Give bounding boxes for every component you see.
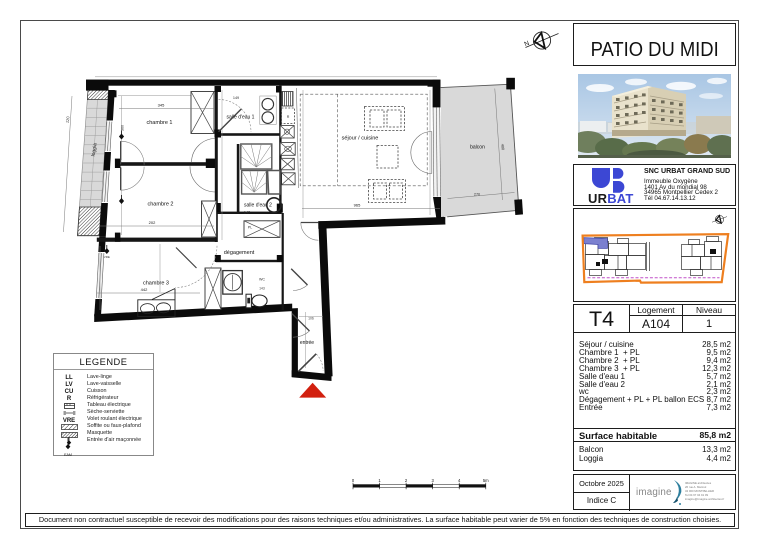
svg-text:965: 965 — [354, 203, 361, 208]
svg-text:0: 0 — [352, 478, 355, 483]
svg-text:4: 4 — [458, 478, 461, 483]
svg-text:PL: PL — [248, 226, 252, 230]
svg-text:202: 202 — [149, 220, 156, 225]
svg-text:chambre 3: chambre 3 — [143, 280, 169, 286]
svg-text:EAM: EAM — [64, 453, 72, 457]
svg-text:345: 345 — [158, 102, 165, 107]
svg-text:entrée: entrée — [300, 340, 314, 346]
svg-text:N: N — [523, 40, 530, 48]
svg-text:400: 400 — [500, 144, 504, 151]
svg-text:imagine: imagine — [636, 487, 672, 498]
svg-text:chambre 1: chambre 1 — [147, 120, 173, 126]
svg-text:143: 143 — [259, 287, 265, 291]
svg-text:3: 3 — [431, 478, 434, 483]
svg-text:URBAT: URBAT — [588, 191, 634, 206]
svg-text:442: 442 — [141, 287, 148, 292]
svg-text:dégagement: dégagement — [224, 250, 255, 256]
svg-text:270: 270 — [474, 193, 480, 197]
svg-text:imagine@imagine.architectes.fr: imagine@imagine.architectes.fr — [685, 497, 724, 501]
svg-text:5m: 5m — [483, 478, 489, 483]
svg-text:147: 147 — [244, 210, 250, 214]
svg-text:1: 1 — [378, 478, 381, 483]
svg-text:WC: WC — [259, 277, 265, 281]
svg-text:VRE: VRE — [104, 255, 110, 259]
svg-text:106: 106 — [308, 317, 314, 321]
svg-text:149: 149 — [233, 96, 239, 100]
svg-text:360: 360 — [121, 125, 125, 131]
svg-text:chambre 2: chambre 2 — [148, 202, 174, 208]
svg-text:120: 120 — [65, 115, 71, 123]
svg-text:séjour / cuisine: séjour / cuisine — [342, 136, 379, 142]
svg-text:2: 2 — [405, 478, 408, 483]
svg-text:balcon: balcon — [470, 144, 485, 150]
svg-text:R: R — [287, 115, 290, 119]
